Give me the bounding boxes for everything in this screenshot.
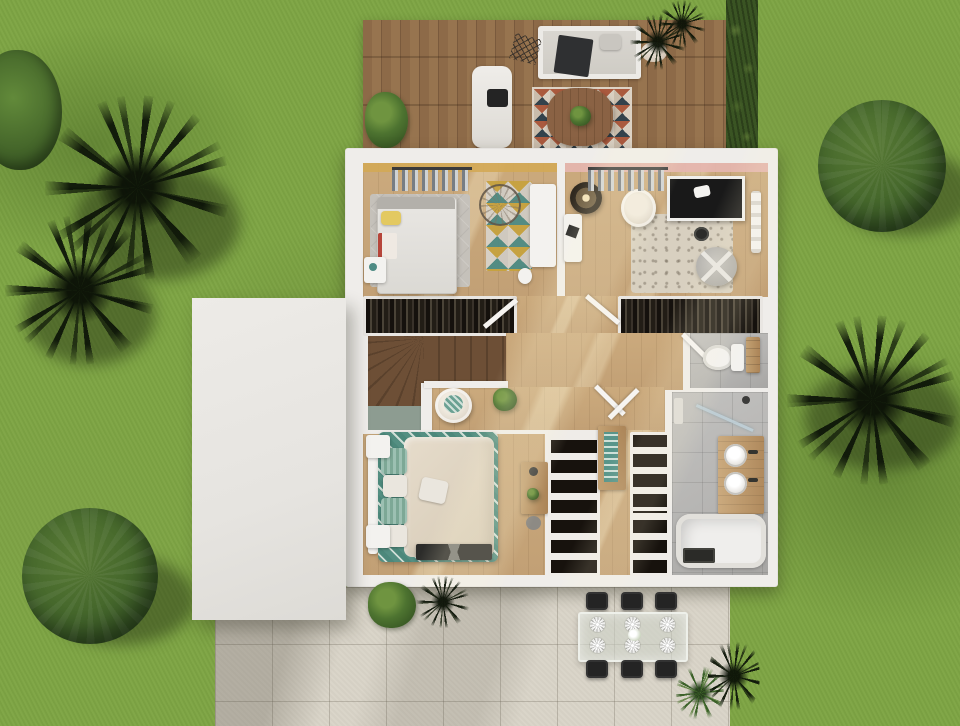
round-tree-bottom-left (22, 508, 158, 644)
aerial-house-render (0, 0, 960, 726)
right-palm (787, 315, 957, 485)
round-tree-right (818, 100, 946, 232)
garden-vegetation (0, 0, 960, 726)
left-palm-small (5, 215, 155, 365)
